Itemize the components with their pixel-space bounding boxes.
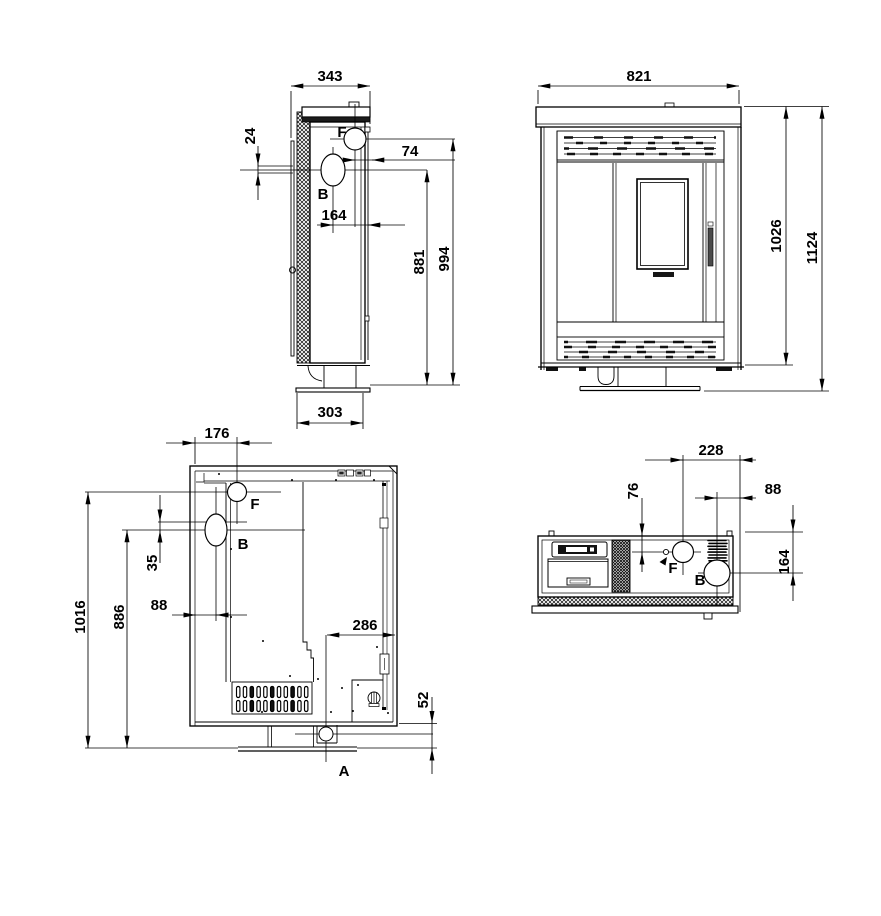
dim-side-base-depth-text: 303 <box>317 404 342 421</box>
front-top-grille <box>557 131 724 160</box>
dim-side-f-to-front-text: 74 <box>402 143 419 160</box>
control-panel <box>552 542 607 557</box>
dim-side-b-height: 881 <box>411 170 428 385</box>
front-top-grille-slats <box>564 138 716 155</box>
dim-section-b-offset: 88 <box>151 597 247 615</box>
dim-top-b-to-back: 88 <box>695 481 781 498</box>
rear-bracket-hook <box>290 267 296 273</box>
dim-front-body-height-text: 1026 <box>768 219 785 252</box>
dim-side-back-offset-text: 24 <box>242 127 259 144</box>
dim-top-b-to-back-text: 88 <box>765 481 782 498</box>
dim-side-depth-text: 343 <box>317 68 342 85</box>
front-body <box>536 103 744 391</box>
door-window <box>637 179 688 269</box>
side-label-b: B <box>318 186 329 203</box>
air-outlet-b-ellipse <box>321 154 345 186</box>
section-view: F B A 176 1016 886 <box>72 425 437 780</box>
dim-section-fb-gap-text: 35 <box>144 555 161 572</box>
door-latch <box>708 228 713 266</box>
section-a-circle <box>319 727 333 741</box>
brand-logo-mark <box>653 272 674 277</box>
pellet-hopper-grate <box>612 540 630 592</box>
dim-side-f-height-text: 994 <box>436 246 453 272</box>
section-port-a: A <box>295 635 433 780</box>
top-base-plate <box>532 606 738 613</box>
dim-section-fb-gap: 35 <box>144 495 161 571</box>
rear-shield-strip <box>538 597 733 605</box>
section-f-circle <box>228 483 247 502</box>
hopper-lid <box>548 559 608 587</box>
top-label-b: B <box>695 572 706 589</box>
dim-top-f-to-back-text: 228 <box>698 442 723 459</box>
dim-side-b-height-text: 881 <box>411 249 428 274</box>
technical-drawing-page: F B 343 24 74 <box>0 0 881 916</box>
dim-section-a-offset: 286 <box>327 617 395 635</box>
section-port-b: B <box>122 487 305 621</box>
dim-section-b-height: 886 <box>111 530 128 748</box>
section-port-f: F <box>85 437 281 524</box>
section-label-f: F <box>250 496 259 513</box>
hopper-handle <box>567 578 590 585</box>
dim-side-b-to-front-text: 164 <box>321 207 347 224</box>
top-view: F B 228 88 76 <box>532 442 803 619</box>
section-b-ellipse <box>205 514 227 546</box>
dim-side-base-depth: 303 <box>297 393 363 429</box>
sensor-dot <box>663 549 668 554</box>
dim-front-width: 821 <box>538 68 739 104</box>
drawing-canvas: F B 343 24 74 <box>0 0 881 916</box>
top-cap <box>302 107 370 117</box>
dim-section-b-offset-text: 88 <box>151 597 168 614</box>
dim-section-a-height-text: 52 <box>415 692 432 709</box>
front-foot <box>598 367 614 385</box>
front-view: 821 1026 1124 <box>536 68 829 391</box>
section-label-a: A <box>339 763 350 780</box>
dim-side-back-offset: 24 <box>242 127 293 200</box>
side-base-plate <box>296 388 370 392</box>
dim-front-total-height-text: 1124 <box>804 231 821 264</box>
dim-section-f-height-text: 1016 <box>72 600 89 633</box>
dim-section-a-offset-text: 286 <box>352 617 377 634</box>
dim-top-b-depth: 164 <box>745 505 803 601</box>
dim-top-b-depth-text: 164 <box>776 549 793 575</box>
section-body <box>190 466 397 751</box>
dim-top-f-depth-text: 76 <box>625 483 642 500</box>
screw-dots <box>218 473 389 714</box>
dim-section-f-offset-text: 176 <box>204 425 229 442</box>
auger-motor <box>368 692 380 707</box>
section-label-b: B <box>238 536 249 553</box>
dim-front-total-height: 1124 <box>704 107 829 392</box>
dim-section-f-offset: 176 <box>166 425 272 464</box>
f-pointer-flag <box>660 557 668 566</box>
side-view: F B 343 24 74 <box>240 68 460 429</box>
top-label-f: F <box>668 560 677 577</box>
flue-coil <box>708 541 727 561</box>
flue-outlet-f-circle <box>344 128 366 150</box>
dim-front-width-text: 821 <box>626 68 651 85</box>
side-label-f: F <box>337 124 346 141</box>
rear-heat-shield <box>297 112 310 363</box>
front-bottom-grille-slats <box>564 342 716 357</box>
top-b-circle <box>704 560 730 586</box>
dim-section-b-height-text: 886 <box>111 604 128 629</box>
